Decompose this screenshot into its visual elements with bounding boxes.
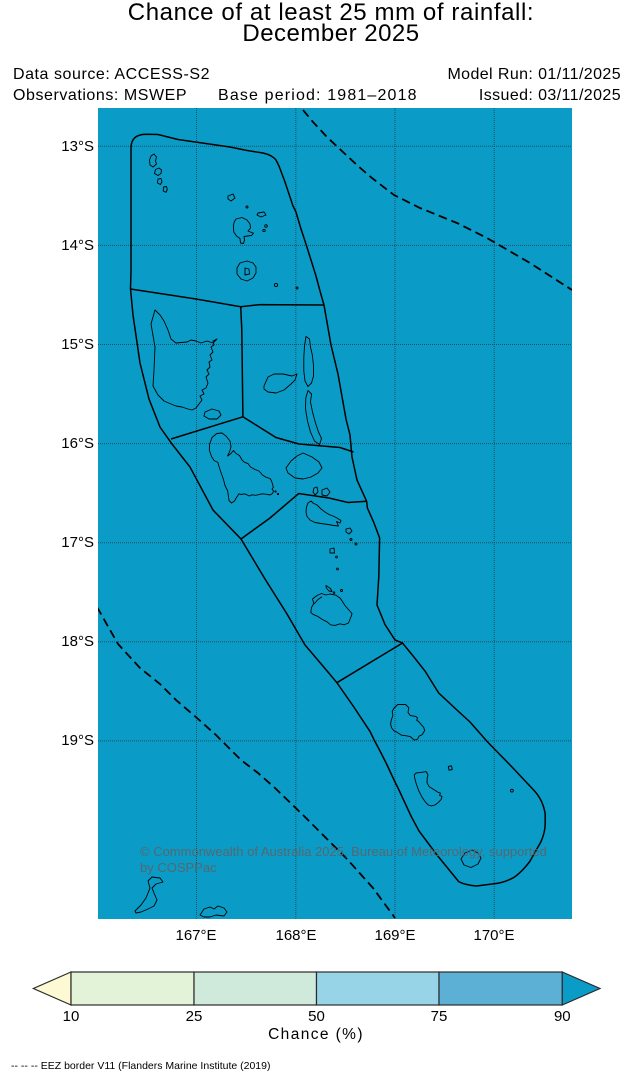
svg-text:25: 25 [186,1008,203,1025]
svg-text:by COSPPac: by COSPPac [140,860,217,875]
svg-text:75: 75 [431,1008,448,1025]
svg-text:90: 90 [554,1008,571,1025]
svg-text:10: 10 [63,1008,80,1025]
svg-text:50: 50 [308,1008,325,1025]
svg-text:© Commonwealth of Australia 20: © Commonwealth of Australia 2025, Bureau… [140,844,547,859]
